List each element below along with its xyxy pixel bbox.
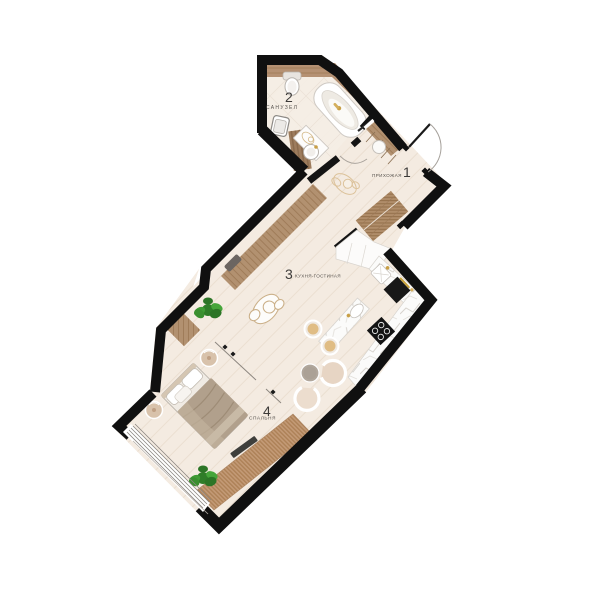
svg-text:3: 3 (285, 266, 293, 282)
svg-text:СПАЛЬНЯ: СПАЛЬНЯ (249, 416, 276, 422)
svg-text:САНУЗЕЛ: САНУЗЕЛ (266, 105, 298, 111)
svg-text:КУХНЯ-ГОСТИНАЯ: КУХНЯ-ГОСТИНАЯ (295, 274, 341, 279)
svg-text:1: 1 (403, 164, 411, 180)
svg-text:ПРИХОЖАЯ: ПРИХОЖАЯ (372, 173, 402, 178)
svg-text:2: 2 (285, 89, 293, 105)
